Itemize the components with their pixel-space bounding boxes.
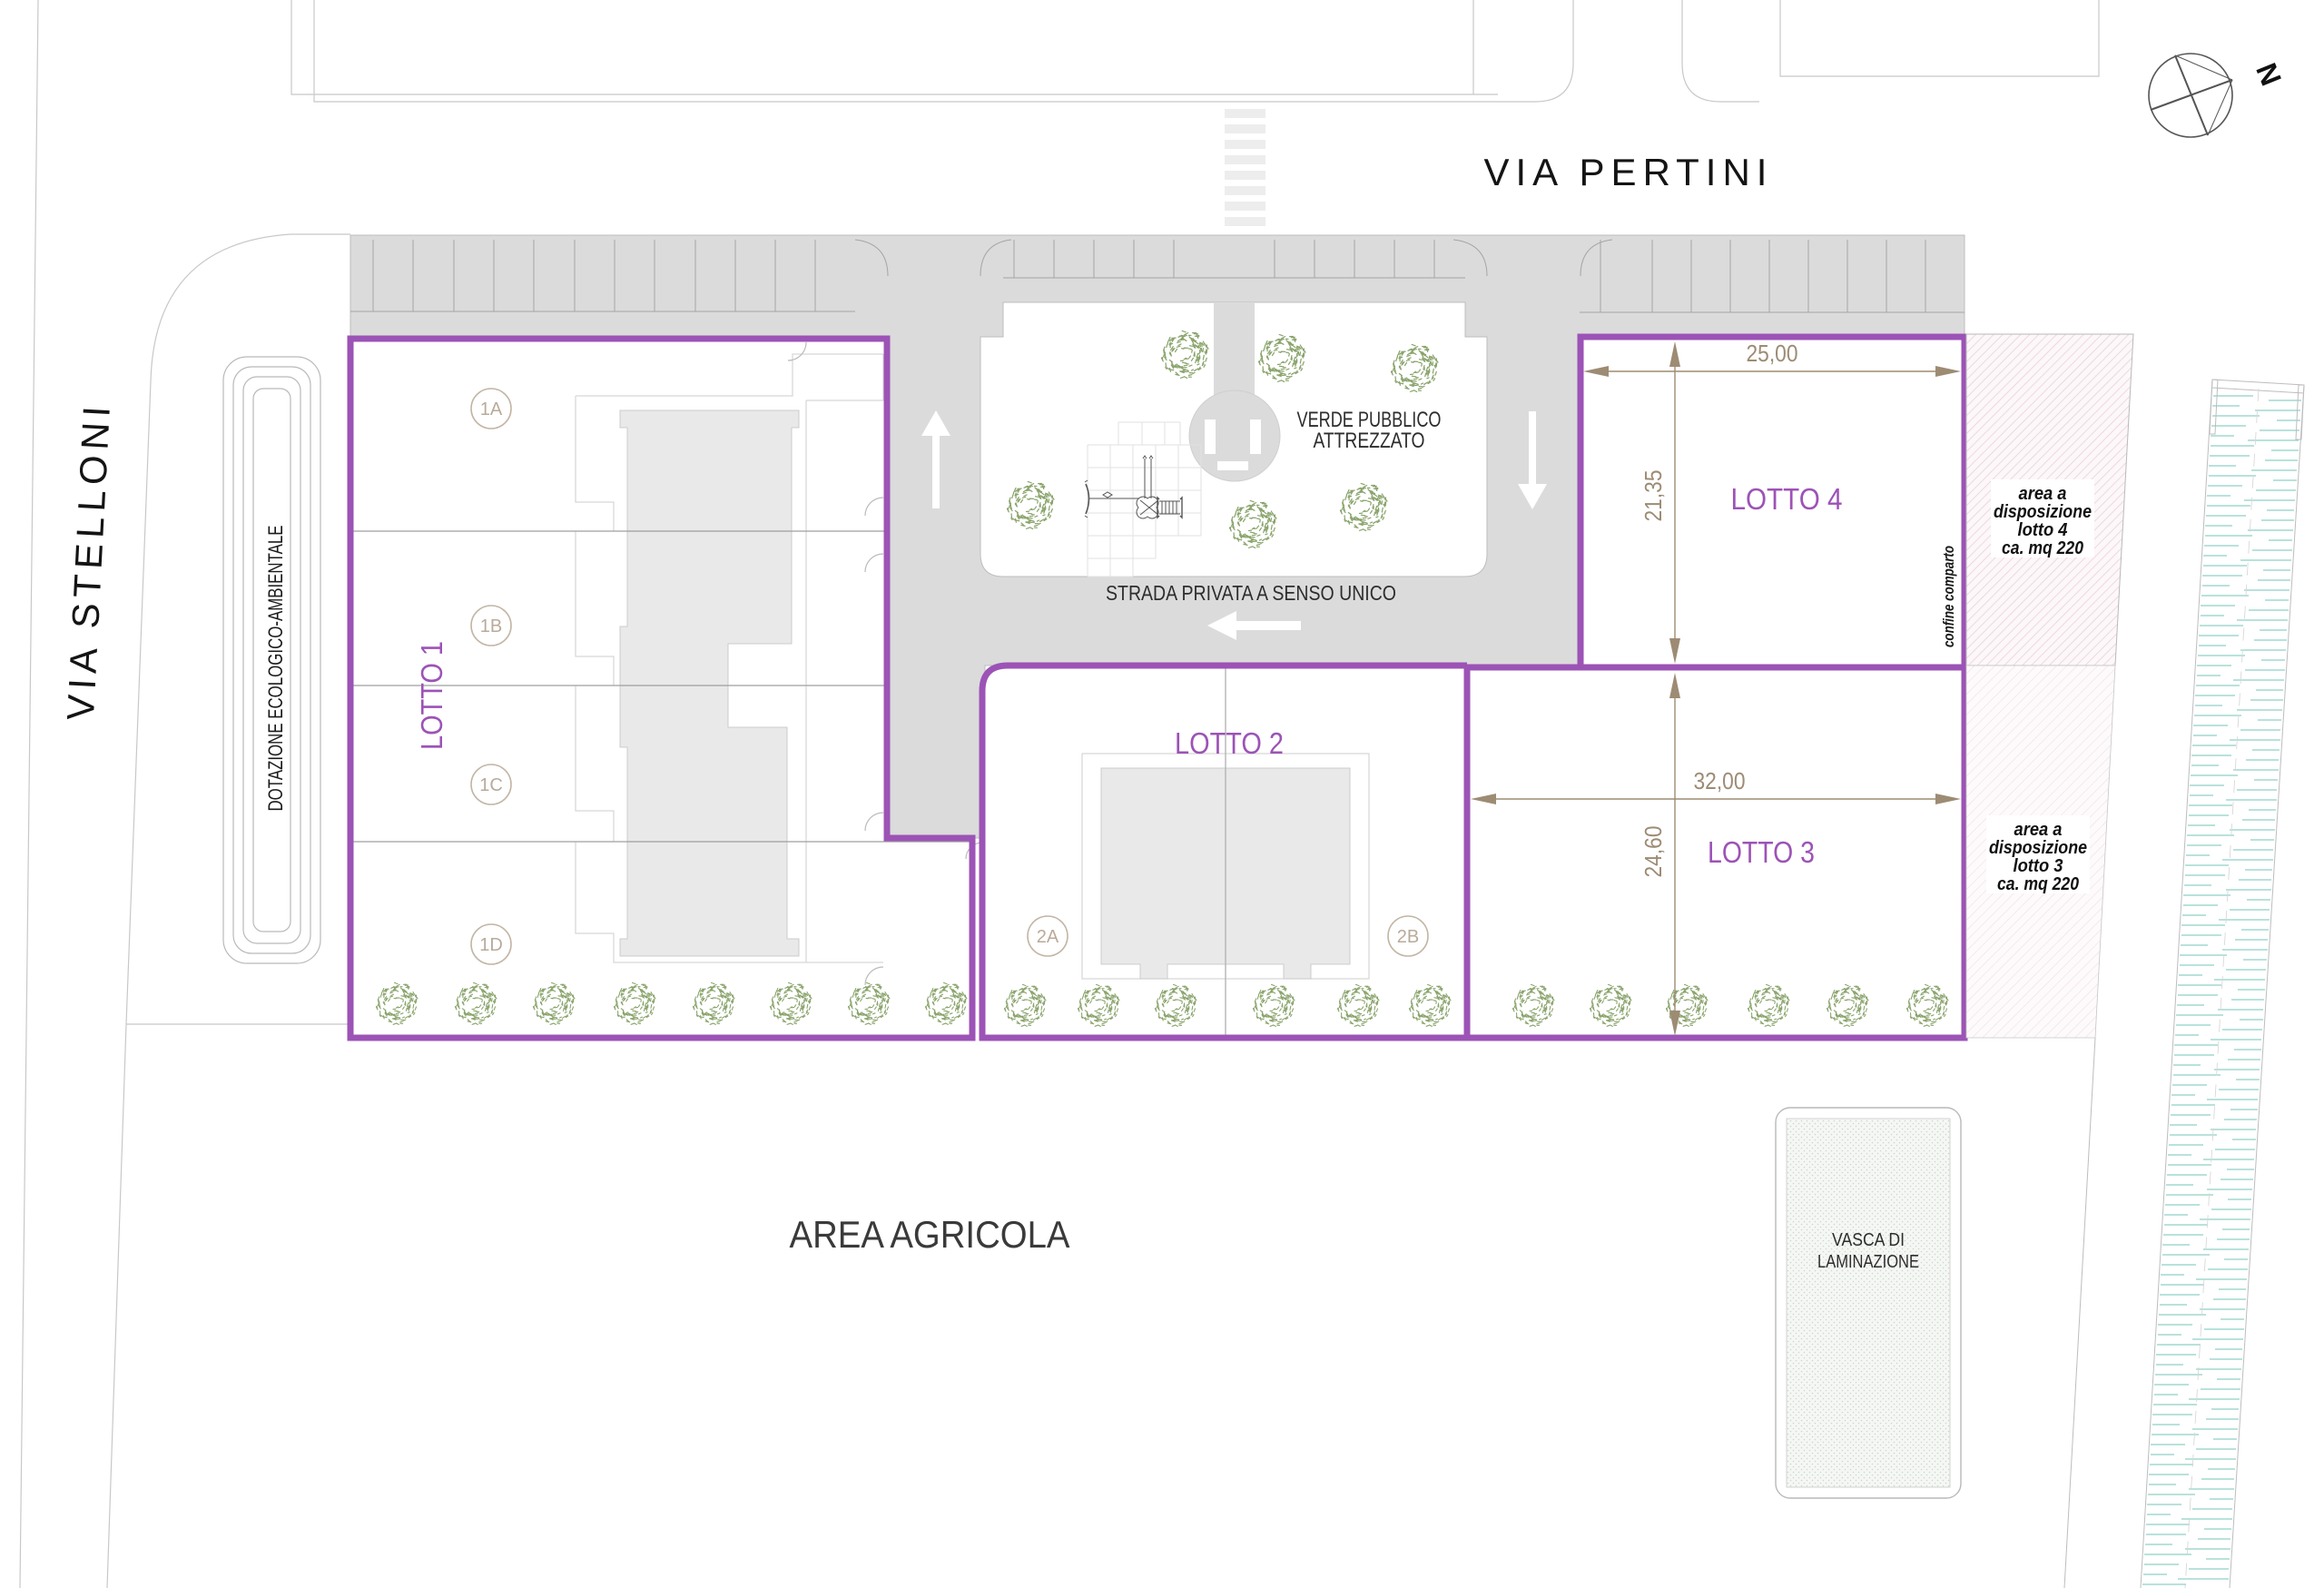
svg-text:ATTREZZATO: ATTREZZATO (1314, 429, 1425, 453)
svg-text:LOTTO 1: LOTTO 1 (415, 641, 448, 750)
svg-text:disposizione: disposizione (1994, 502, 2092, 522)
svg-text:1D: 1D (479, 935, 503, 955)
svg-text:VIA PERTINI: VIA PERTINI (1484, 151, 1774, 193)
svg-text:DOTAZIONE ECOLOGICO-AMBIENTALE: DOTAZIONE ECOLOGICO-AMBIENTALE (264, 526, 287, 812)
svg-text:2A: 2A (1037, 927, 1059, 947)
svg-text:LOTTO 2: LOTTO 2 (1175, 726, 1284, 760)
svg-text:24,60: 24,60 (1640, 826, 1667, 878)
svg-text:LOTTO 3: LOTTO 3 (1708, 835, 1815, 869)
svg-text:lotto 4: lotto 4 (2018, 520, 2068, 540)
svg-text:AREA AGRICOLA: AREA AGRICOLA (790, 1213, 1070, 1256)
svg-text:LAMINAZIONE: LAMINAZIONE (1817, 1252, 1919, 1272)
svg-text:2B: 2B (1397, 927, 1419, 947)
svg-text:VASCA DI: VASCA DI (1832, 1230, 1905, 1250)
svg-text:1A: 1A (480, 399, 503, 419)
svg-text:confine comparto: confine comparto (1940, 546, 1957, 647)
svg-text:ca. mq 220: ca. mq 220 (2002, 538, 2083, 558)
svg-text:1C: 1C (479, 775, 503, 795)
svg-text:lotto 3: lotto 3 (2014, 856, 2063, 876)
svg-text:25,00: 25,00 (1747, 340, 1798, 367)
svg-text:area a: area a (2019, 484, 2067, 504)
svg-text:STRADA PRIVATA A SENSO UNICO: STRADA PRIVATA A SENSO UNICO (1106, 581, 1396, 605)
svg-text:21,35: 21,35 (1640, 470, 1667, 522)
svg-text:1B: 1B (480, 616, 502, 636)
svg-text:32,00: 32,00 (1694, 767, 1746, 794)
svg-text:disposizione: disposizione (1989, 838, 2087, 858)
svg-text:LOTTO 4: LOTTO 4 (1731, 482, 1843, 516)
svg-text:ca. mq 220: ca. mq 220 (1997, 874, 2079, 894)
svg-text:area a: area a (2014, 820, 2063, 840)
